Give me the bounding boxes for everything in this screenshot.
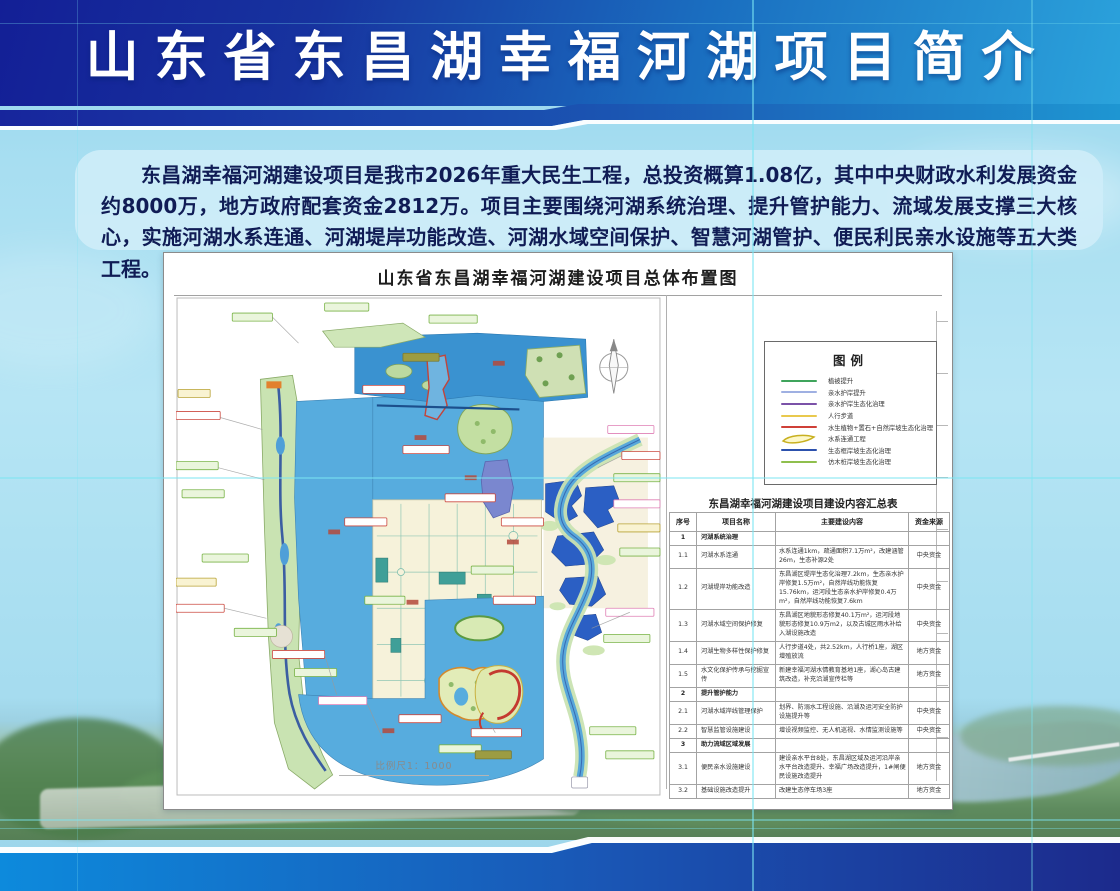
table-header: 资金来源: [909, 513, 950, 532]
legend-item: 生态框岸坡生态化治理: [781, 445, 936, 457]
table-cell-name: 河湖水系连通: [697, 545, 776, 568]
table-cell-no: 1.3: [670, 609, 697, 641]
legend-label: 水生植物+置石+自然岸坡生态化治理: [828, 423, 933, 432]
legend-item: 水生植物+置石+自然岸坡生态化治理: [781, 421, 936, 433]
table-cell-no: 3.2: [670, 784, 697, 798]
legend-label: 生态框岸坡生态化治理: [828, 446, 891, 455]
legend-label: 仿木桩岸坡生态化治理: [828, 457, 891, 466]
legend-item: 水系连通工程: [781, 433, 936, 445]
table-header: 项目名称: [697, 513, 776, 532]
table-row: 2提升管护能力: [670, 687, 950, 701]
table-cell-name: 智慧监管设施建设: [697, 724, 776, 738]
table-cell-no: 1.1: [670, 545, 697, 568]
panel-rule: [174, 295, 942, 296]
table-row: 2.2智慧监管设施建设增设视频监控、无人机巡视、水情监测设施等中央资金: [670, 724, 950, 738]
legend-item: 亲水护岸生态化治理: [781, 398, 936, 410]
table-cell-name: 河湖堤岸功能改造: [697, 568, 776, 609]
table-cell-fund: [909, 532, 950, 546]
table-row: 1.4河湖生物多样性保护修复人行步道4处，共2.52km，人行桥1座，湖区增殖放…: [670, 641, 950, 664]
table-row: 1.3河湖水域空间保护修复东昌湖区地貌形态修复40.1万m²，运河段地貌形态修复…: [670, 609, 950, 641]
intro-panel: 东昌湖幸福河湖建设项目是我市2026年重大民生工程，总投资概算1.08亿，其中中…: [75, 150, 1103, 250]
table-row: 1.5水文化保护传承与挖掘宣传新建幸福河湖水情教育基地1座，湖心岛古建筑改造，补…: [670, 664, 950, 687]
legend-swatch-icon: [781, 433, 821, 445]
table-row: 3.1便民亲水设施建设建设亲水平台8处，东昌湖区域及运河沿岸亲水平台改造提升、幸…: [670, 752, 950, 784]
table-row: 1.2河湖堤岸功能改造东昌湖区堤岸生态化治理7.2km，生态亲水护岸修复1.5万…: [670, 568, 950, 609]
summary-table: 序号项目名称主要建设内容资金来源1河湖系统治理1.1河湖水系连通水系连通1km，…: [669, 512, 950, 799]
site-plan-map: [176, 297, 662, 797]
table-cell-name: 河湖生物多样性保护修复: [697, 641, 776, 664]
table-row: 1河湖系统治理: [670, 532, 950, 546]
table-cell-no: 1.2: [670, 568, 697, 609]
legend-label: 亲水护岸生态化治理: [828, 399, 885, 408]
table-cell-content: 增设视频监控、无人机巡视、水情监测设施等: [776, 724, 909, 738]
legend-swatch-icon: [781, 403, 821, 405]
legend-item: 仿木桩岸坡生态化治理: [781, 456, 936, 468]
table-cell-name: 河湖水域岸线管理保护: [697, 701, 776, 724]
footer-band: [0, 833, 1120, 891]
legend-item: 人行步道: [781, 410, 936, 422]
table-header: 主要建设内容: [776, 513, 909, 532]
table-cell-fund: 中央资金: [909, 545, 950, 568]
table-cell-content: 划界、防溺水工程设施、沿湖及运河安全防护设施提升等: [776, 701, 909, 724]
legend-item: 植被提升: [781, 375, 936, 387]
legend-box: 图例 植被提升亲水护岸提升亲水护岸生态化治理人行步道水生植物+置石+自然岸坡生态…: [764, 341, 937, 485]
table-cell-no: 3.1: [670, 752, 697, 784]
table-cell-fund: 中央资金: [909, 724, 950, 738]
table-cell-no: 2.2: [670, 724, 697, 738]
table-cell-fund: [909, 738, 950, 752]
legend-item: 亲水护岸提升: [781, 387, 936, 399]
table-cell-content: 改建生态停车场3座: [776, 784, 909, 798]
legend-swatch-icon: [781, 391, 821, 393]
table-cell-content: [776, 738, 909, 752]
legend-swatch-icon: [781, 380, 821, 382]
table-cell-fund: 中央资金: [909, 701, 950, 724]
map-panel: 山东省东昌湖幸福河湖建设项目总体布置图: [163, 252, 953, 810]
table-row: 1.1河湖水系连通水系连通1km，疏通面积7.1万m²，改建涵管26m，生态补源…: [670, 545, 950, 568]
table-title: 东昌湖幸福河湖建设项目建设内容汇总表: [669, 496, 937, 511]
table-cell-no: 2.1: [670, 701, 697, 724]
table-cell-name: 河湖水域空间保护修复: [697, 609, 776, 641]
table-cell-content: [776, 532, 909, 546]
table-cell-content: 水系连通1km，疏通面积7.1万m²，改建涵管26m，生态补源2处: [776, 545, 909, 568]
table-cell-content: 人行步道4处，共2.52km，人行桥1座，湖区增殖放流: [776, 641, 909, 664]
table-cell-name: 河湖系统治理: [697, 532, 776, 546]
legend-label: 人行步道: [828, 411, 853, 420]
table-cell-fund: [909, 687, 950, 701]
banner: 山东省东昌湖幸福河湖项目简介: [0, 0, 1120, 106]
table-row: 3.2基础设施改造提升改建生态停车场3座地方资金: [670, 784, 950, 798]
table-cell-no: 1: [670, 532, 697, 546]
table-cell-content: 东昌湖区地貌形态修复40.1万m²，运河段地貌形态修复10.9万m2，以及古城区…: [776, 609, 909, 641]
table-cell-no: 3: [670, 738, 697, 752]
legend-swatch-icon: [781, 461, 821, 463]
table-header: 序号: [670, 513, 697, 532]
table-row: 2.1河湖水域岸线管理保护划界、防溺水工程设施、沿湖及运河安全防护设施提升等中央…: [670, 701, 950, 724]
table-cell-name: 基础设施改造提升: [697, 784, 776, 798]
table-cell-name: 水文化保护传承与挖掘宣传: [697, 664, 776, 687]
legend-title: 图例: [765, 350, 936, 369]
table-cell-fund: 地方资金: [909, 784, 950, 798]
table-cell-content: 建设亲水平台8处，东昌湖区域及运河沿岸亲水平台改造提升、幸福广场改造提升，1#闸…: [776, 752, 909, 784]
table-cell-fund: 地方资金: [909, 664, 950, 687]
table-cell-fund: 地方资金: [909, 641, 950, 664]
table-cell-content: 东昌湖区堤岸生态化治理7.2km，生态亲水护岸修复1.5万m²，自然岸线功能恢复…: [776, 568, 909, 609]
scale-label: 比例尺1：1000: [339, 758, 489, 776]
table-cell-fund: 地方资金: [909, 752, 950, 784]
legend-swatch-icon: [781, 449, 821, 451]
map-title: 山东省东昌湖幸福河湖建设项目总体布置图: [164, 264, 952, 289]
table-cell-fund: 中央资金: [909, 609, 950, 641]
table-cell-name: 提升管护能力: [697, 687, 776, 701]
panel-divider: [666, 295, 667, 789]
legend-label: 植被提升: [828, 376, 853, 385]
table-cell-content: 新建幸福河湖水情教育基地1座，湖心岛古建筑改造，补充沿湖宣传栏等: [776, 664, 909, 687]
table-cell-name: 助力流域区域发展: [697, 738, 776, 752]
legend-swatch-icon: [781, 415, 821, 417]
table-cell-no: 2: [670, 687, 697, 701]
legend-swatch-icon: [781, 426, 821, 428]
poster-title: 山东省东昌湖幸福河湖项目简介: [70, 15, 1051, 91]
table-cell-fund: 中央资金: [909, 568, 950, 609]
banner-divider-band: [0, 104, 1120, 144]
table-cell-no: 1.4: [670, 641, 697, 664]
legend-label: 水系连通工程: [828, 434, 866, 443]
table-cell-no: 1.5: [670, 664, 697, 687]
table-cell-name: 便民亲水设施建设: [697, 752, 776, 784]
table-row: 3助力流域区域发展: [670, 738, 950, 752]
legend-items: 植被提升亲水护岸提升亲水护岸生态化治理人行步道水生植物+置石+自然岸坡生态化治理…: [765, 369, 936, 468]
legend-label: 亲水护岸提升: [828, 388, 866, 397]
table-cell-content: [776, 687, 909, 701]
